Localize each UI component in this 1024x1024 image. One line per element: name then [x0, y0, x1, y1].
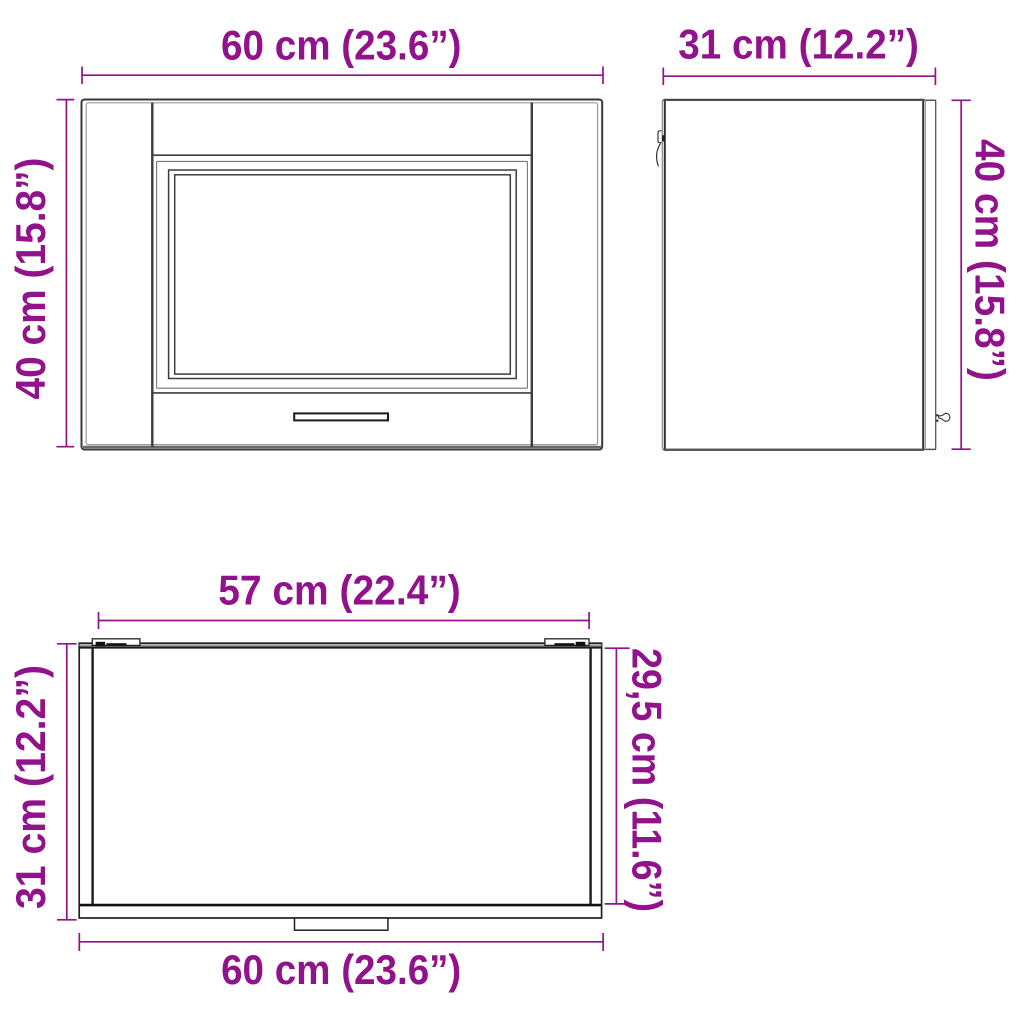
svg-text:31 cm (12.2”): 31 cm (12.2”): [7, 665, 54, 909]
svg-text:40 cm (15.8”): 40 cm (15.8”): [7, 158, 54, 400]
svg-text:29,5 cm (11.6”): 29,5 cm (11.6”): [624, 648, 671, 912]
svg-text:40 cm (15.8”): 40 cm (15.8”): [967, 139, 1014, 381]
svg-text:60 cm (23.6”): 60 cm (23.6”): [221, 21, 462, 68]
svg-text:57 cm (22.4”): 57 cm (22.4”): [218, 567, 461, 614]
svg-text:31 cm (12.2”): 31 cm (12.2”): [678, 21, 919, 68]
svg-text:60 cm (23.6”): 60 cm (23.6”): [221, 946, 461, 993]
